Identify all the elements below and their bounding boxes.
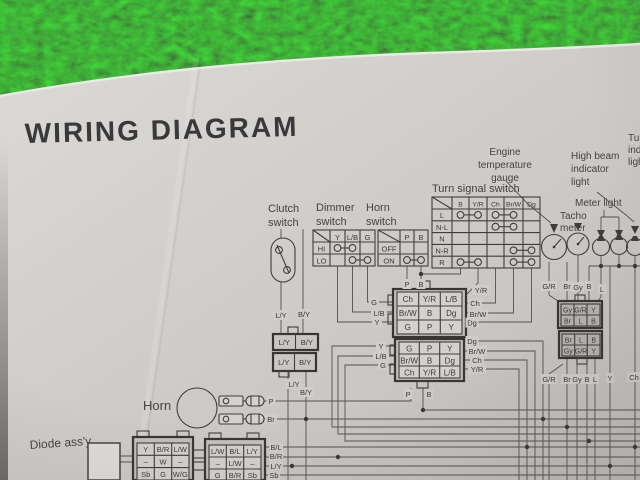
manual-photo: WIRING DIAGRAM Clutch switch Dimmer swit… (0, 0, 640, 480)
wiring-diagram-page: WIRING DIAGRAM Clutch switch Dimmer swit… (0, 0, 640, 480)
photo-vignette (0, 0, 640, 480)
